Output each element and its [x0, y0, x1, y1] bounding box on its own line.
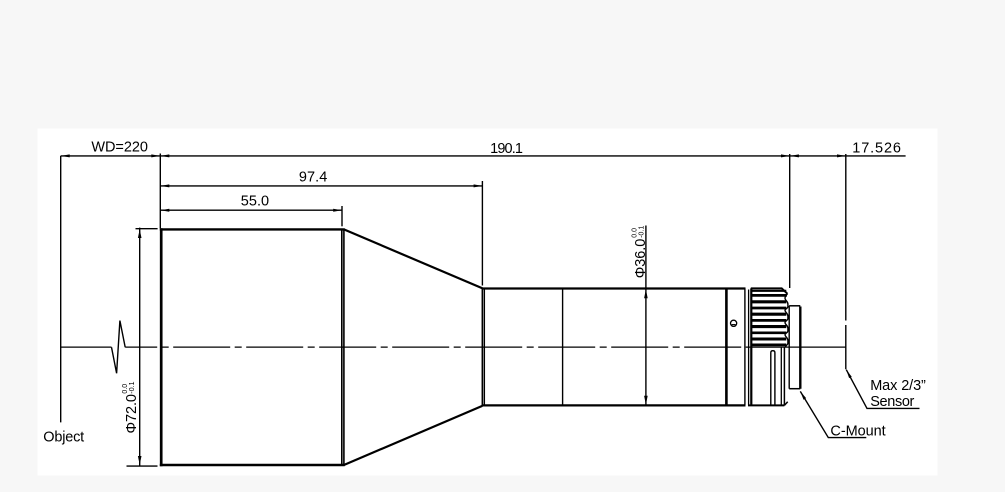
svg-text:-0.1: -0.1 [129, 381, 136, 393]
svg-text:17.526: 17.526 [852, 141, 901, 157]
svg-text:97.4: 97.4 [299, 170, 327, 186]
svg-text:Sensor: Sensor [870, 394, 914, 410]
svg-text:C-Mount: C-Mount [830, 424, 885, 440]
svg-text:Φ36.0: Φ36.0 [633, 239, 649, 279]
svg-text:Max 2/3”: Max 2/3” [870, 378, 926, 394]
svg-text:WD=220: WD=220 [91, 140, 147, 156]
svg-text:-0.1: -0.1 [639, 226, 646, 238]
svg-text:Object: Object [43, 430, 84, 446]
svg-text:Φ72.0: Φ72.0 [124, 394, 140, 434]
svg-text:0.0: 0.0 [631, 228, 638, 238]
svg-text:0.0: 0.0 [122, 384, 129, 394]
svg-text:190.1: 190.1 [490, 141, 523, 157]
svg-text:55.0: 55.0 [241, 194, 269, 210]
